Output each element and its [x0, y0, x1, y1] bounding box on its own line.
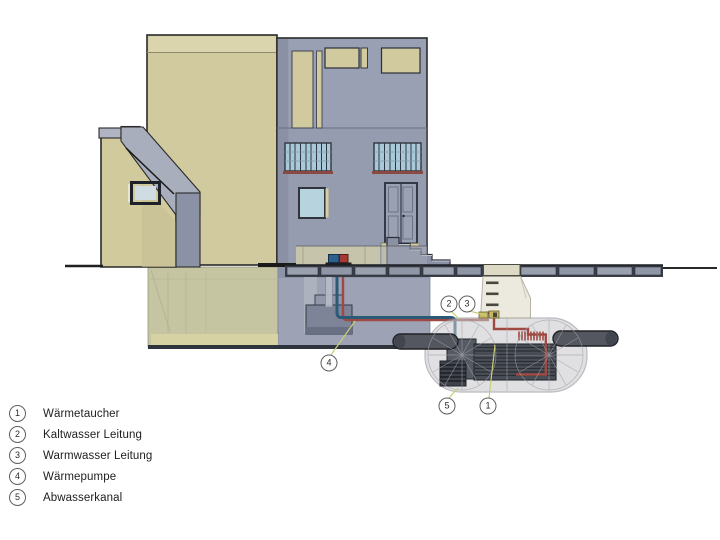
- legend-label: Wärmepumpe: [43, 471, 116, 483]
- callout-number: 3: [464, 300, 469, 309]
- legend-item-warmwasser: 3 Warmwasser Leitung: [9, 445, 152, 466]
- callout-waermetaucher: 1: [480, 398, 497, 415]
- callout-number: 1: [485, 402, 490, 411]
- pavement: [285, 265, 663, 277]
- callout-number: 5: [444, 402, 449, 411]
- legend-number-badge: 1: [9, 405, 26, 422]
- callout-kaltwasser: 2: [441, 296, 458, 313]
- legend-number-badge: 2: [9, 426, 26, 443]
- legend-item-kaltwasser: 2 Kaltwasser Leitung: [9, 424, 152, 445]
- legend-item-waermetaucher: 1 Wärmetaucher: [9, 403, 152, 424]
- upper-opening-left: [325, 48, 368, 68]
- legend-label: Abwasserkanal: [43, 492, 122, 504]
- legend-label: Kaltwasser Leitung: [43, 429, 142, 441]
- callout-waermepumpe: 4: [321, 355, 338, 372]
- legend: 1 Wärmetaucher 2 Kaltwasser Leitung 3 Wa…: [9, 403, 152, 508]
- sewer-pipe-right: [553, 331, 618, 346]
- stairwell-window: [292, 51, 322, 128]
- garage-corner-column: [176, 193, 200, 267]
- callout-number: 2: [446, 300, 451, 309]
- ground-floor-interior: [296, 246, 427, 265]
- basement-section: [148, 267, 430, 349]
- legend-number-badge: 5: [9, 489, 26, 506]
- callout-warmwasser: 3: [459, 296, 476, 313]
- legend-item-abwasserkanal: 5 Abwasserkanal: [9, 487, 152, 508]
- grid-window-left: [283, 143, 333, 174]
- legend-label: Warmwasser Leitung: [43, 450, 152, 462]
- shutoff-valves: [326, 255, 352, 265]
- callout-abwasserkanal: 5: [439, 398, 456, 415]
- legend-number-badge: 4: [9, 468, 26, 485]
- grid-window-right: [372, 143, 423, 174]
- legend-label: Wärmetaucher: [43, 408, 120, 420]
- callout-number: 4: [326, 359, 331, 368]
- legend-number-badge: 3: [9, 447, 26, 464]
- legend-item-waermepumpe: 4 Wärmepumpe: [9, 466, 152, 487]
- small-window: [299, 188, 329, 218]
- schematic-canvas: 2 3 4 5 1 1 Wärmetaucher 2 Kaltwasser Le…: [0, 0, 720, 540]
- upper-opening-right: [382, 48, 421, 73]
